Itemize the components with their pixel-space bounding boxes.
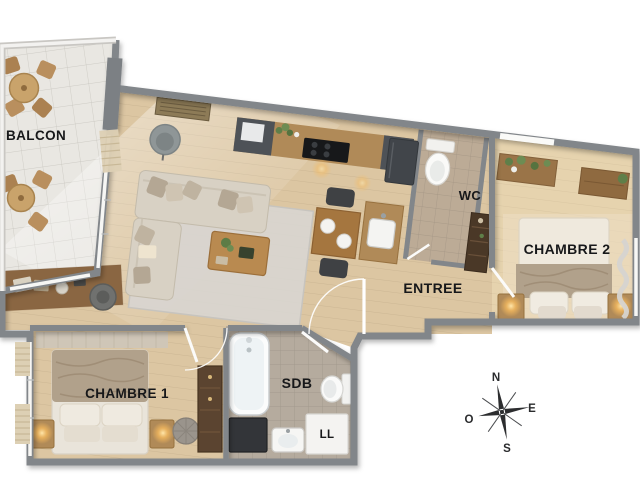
bedroom1-headboard-wall [36,332,168,348]
bathroom-label: SDB [282,375,313,391]
bedroom2-lamp-glow [500,295,522,317]
desk-chair [90,284,116,310]
bedroom1-wardrobe [198,366,222,452]
fridge [385,138,419,185]
bedroom1-lamp-glow [31,422,53,444]
compass-south: S [503,443,511,455]
bedroom1-bed [52,350,148,454]
bedroom1-pouf [173,418,199,444]
bedroom1-label: CHAMBRE 1 [85,386,169,401]
balcony-label: BALCON [6,128,66,143]
wc-label: WC [459,188,482,203]
balcony-corner-wall-thick [110,58,115,130]
floor-plan-canvas: BALCON WC ENTREE CHAMBRE 2 CHAMBRE 1 SDB… [0,0,640,480]
kitchen-island-sink [359,202,404,264]
compass-north: N [492,372,500,384]
dining-table [311,208,360,259]
entrance-label: ENTREE [403,280,462,296]
bedroom1-lamp-glow [152,422,174,444]
bedroom2-label: CHAMBRE 2 [524,241,611,257]
compass-west: O [465,414,474,426]
living-window-blind [99,129,122,172]
bedroom2-bed [516,218,612,319]
dining-chair [325,187,355,208]
washing-machine-label: LL [320,429,335,441]
bedroom2-dresser [579,168,630,200]
compass-rose: N E S O [465,372,537,455]
bathroom-toilet [321,374,352,404]
room-bedroom2 [498,214,634,320]
bathtub [229,333,269,415]
dining-chair [319,257,349,278]
washbasin [272,428,304,452]
bathroom-cabinet [229,418,267,452]
compass-east: E [528,403,536,415]
coffee-table [208,231,270,276]
